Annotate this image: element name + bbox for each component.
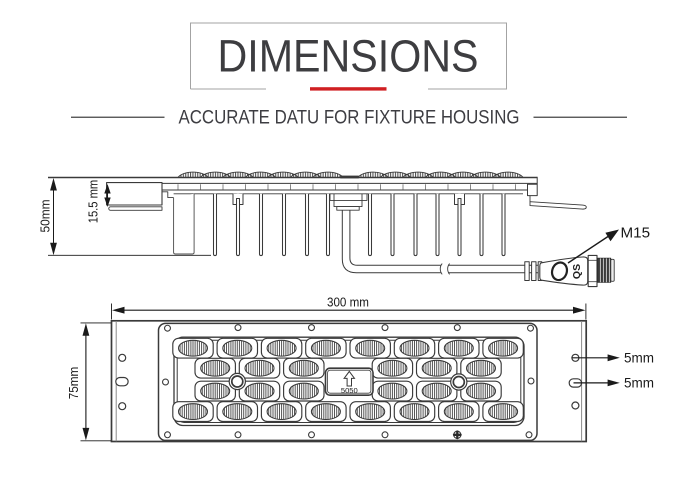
svg-text:5mm: 5mm [624, 376, 654, 391]
svg-text:M15: M15 [621, 225, 651, 242]
svg-text:5050: 5050 [341, 386, 358, 395]
svg-text:300 mm: 300 mm [327, 295, 369, 310]
svg-text:15.5 mm: 15.5 mm [85, 180, 100, 224]
svg-text:50mm: 50mm [38, 199, 53, 232]
svg-text:75mm: 75mm [66, 367, 81, 400]
svg-text:ACCURATE DATU FOR FIXTURE HOUS: ACCURATE DATU FOR FIXTURE HOUSING [179, 107, 520, 128]
svg-text:DIMENSIONS: DIMENSIONS [218, 31, 479, 82]
svg-text:QS: QS [571, 264, 583, 279]
svg-text:5mm: 5mm [624, 351, 654, 366]
